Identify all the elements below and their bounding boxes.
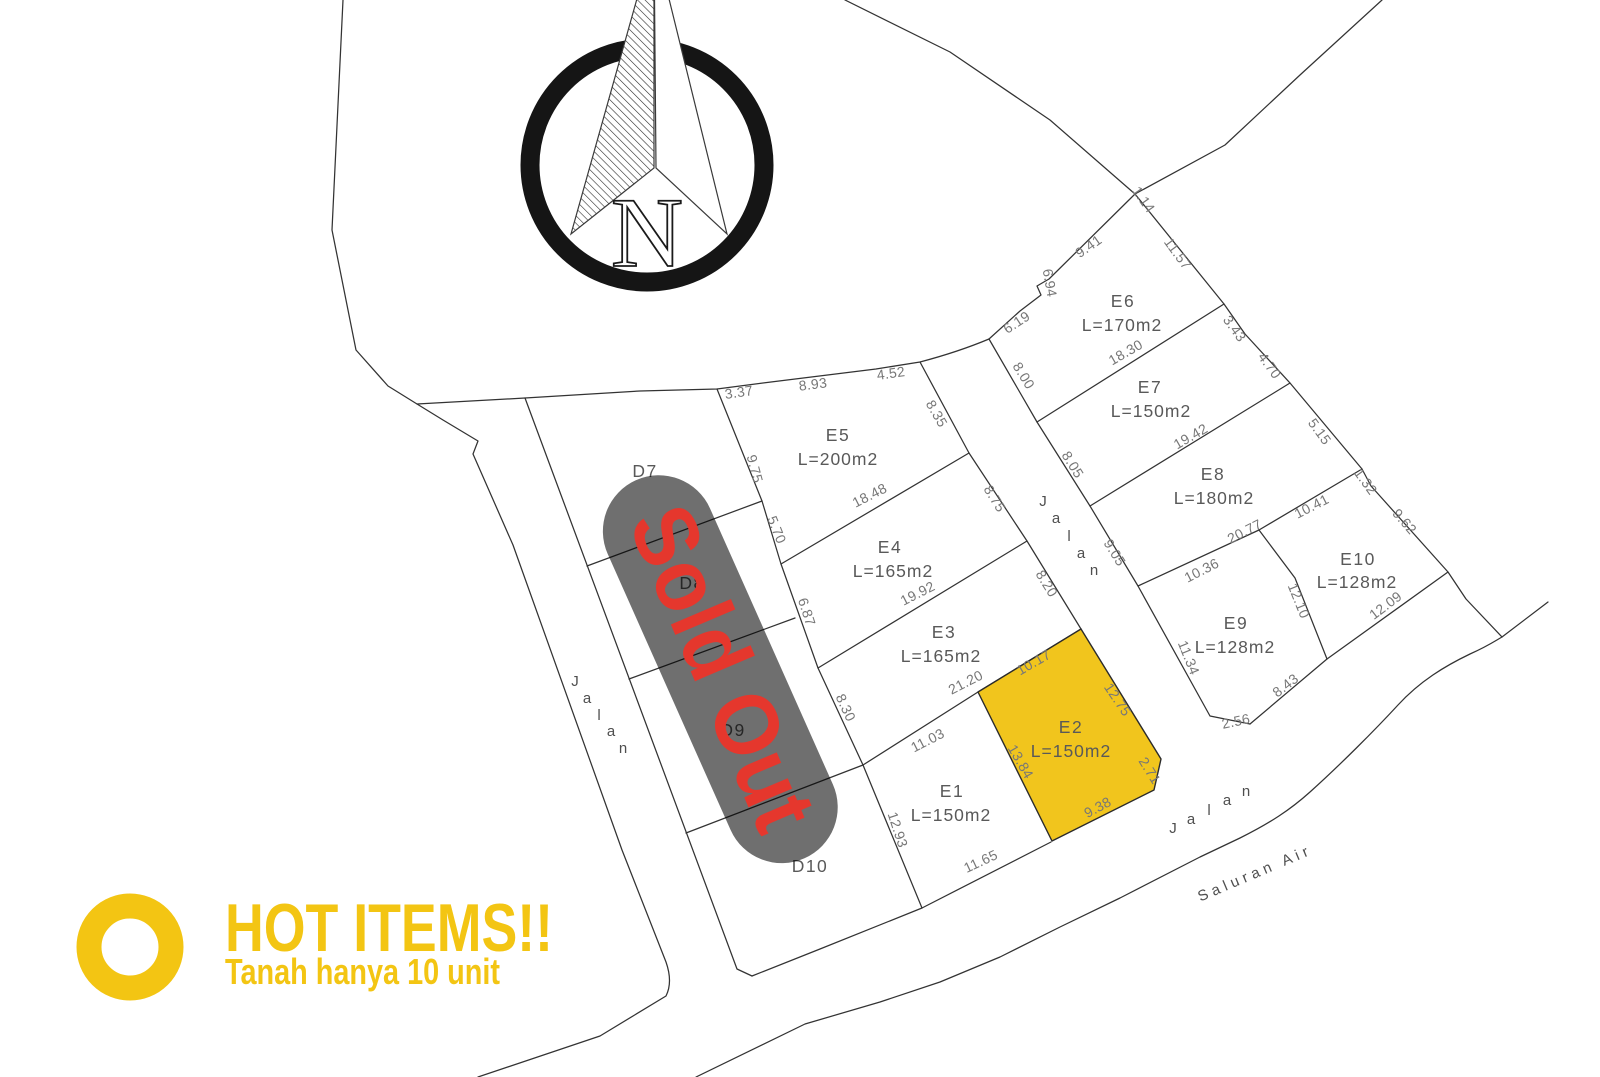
svg-text:L=150m2: L=150m2 [911, 805, 991, 825]
svg-text:E10: E10 [1340, 549, 1376, 569]
svg-text:L=180m2: L=180m2 [1174, 488, 1254, 508]
svg-text:L=200m2: L=200m2 [798, 449, 878, 469]
svg-text:n: n [1242, 783, 1250, 800]
svg-text:E9: E9 [1224, 613, 1248, 633]
svg-text:E7: E7 [1138, 377, 1162, 397]
svg-text:J: J [571, 673, 579, 690]
svg-text:a: a [1223, 792, 1232, 809]
svg-text:J: J [1169, 820, 1177, 837]
svg-text:n: n [619, 740, 627, 757]
svg-text:N: N [611, 177, 683, 288]
svg-text:l: l [1207, 802, 1210, 819]
svg-text:E1: E1 [940, 781, 964, 801]
svg-text:a: a [583, 690, 592, 707]
svg-text:n: n [1090, 562, 1098, 579]
svg-text:E2: E2 [1059, 717, 1083, 737]
svg-text:L=128m2: L=128m2 [1195, 637, 1275, 657]
svg-text:L=150m2: L=150m2 [1031, 741, 1111, 761]
svg-text:L=165m2: L=165m2 [853, 561, 933, 581]
svg-text:L=128m2: L=128m2 [1317, 572, 1397, 592]
svg-text:L=150m2: L=150m2 [1111, 401, 1191, 421]
svg-text:a: a [1077, 545, 1086, 562]
svg-text:L=165m2: L=165m2 [901, 646, 981, 666]
svg-text:E8: E8 [1201, 464, 1225, 484]
svg-text:J: J [1039, 493, 1047, 510]
svg-text:L=170m2: L=170m2 [1082, 315, 1162, 335]
svg-text:Tanah hanya 10 unit: Tanah hanya 10 unit [225, 951, 500, 992]
svg-text:a: a [1187, 811, 1196, 828]
svg-text:E5: E5 [826, 425, 850, 445]
svg-text:E4: E4 [878, 537, 902, 557]
svg-text:a: a [607, 723, 616, 740]
svg-text:l: l [597, 707, 600, 724]
svg-text:E3: E3 [932, 622, 956, 642]
svg-text:l: l [1067, 528, 1070, 545]
svg-text:E6: E6 [1111, 291, 1135, 311]
svg-text:a: a [1052, 510, 1061, 527]
